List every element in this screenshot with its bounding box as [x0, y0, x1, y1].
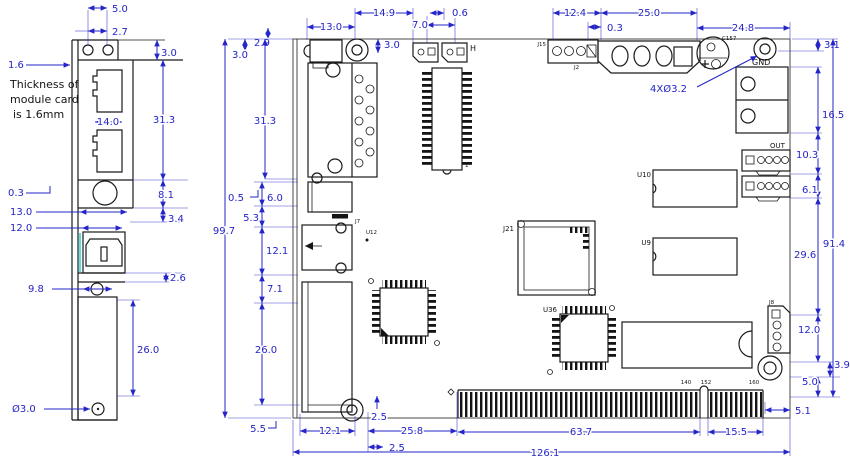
- dim-db-section: 31.3: [254, 116, 276, 127]
- label-j8: J8: [768, 300, 775, 306]
- dim-jack-width: 13.0: [10, 207, 32, 218]
- dim-hole-top-offset: 3.1: [824, 40, 840, 51]
- dim-hole-offset: 2.7: [112, 27, 128, 38]
- dim-seg-6-1: 6.1: [802, 185, 818, 196]
- dim-rj45-width: 14.0: [97, 117, 119, 128]
- dim-seg-10-3: 10.3: [796, 150, 818, 161]
- usb-b-opening: [83, 232, 125, 273]
- dim-finger-seg-small: 15.5: [725, 427, 747, 438]
- mounting-hole-bottom-right: [758, 356, 782, 380]
- label-u9: U9: [641, 239, 651, 247]
- dim-corner-offset: 5.5: [250, 424, 266, 435]
- rj45-cutout-2: [93, 130, 122, 172]
- rj45-cutout-1: [93, 70, 122, 112]
- label-j7: J7: [354, 219, 361, 225]
- tab-hole-left: [83, 45, 93, 55]
- j15-header: [548, 40, 598, 63]
- mounting-hole-top-left: [346, 39, 368, 61]
- dim-gap-below-jack: 3.4: [168, 214, 184, 225]
- dim-seg-6-0: 6.0: [267, 193, 283, 204]
- dim-jack-to-hole: 14.9: [373, 8, 395, 19]
- j21-socket: [518, 221, 596, 296]
- dim-jack-section: 8.1: [158, 190, 174, 201]
- dim-tab-height: 3.0: [161, 48, 177, 59]
- lower-connector-cutout: [78, 297, 117, 420]
- polarity-mark: [448, 389, 454, 395]
- thickness-note-line2: module card: [10, 93, 79, 106]
- dim-lower-connector: 26.0: [137, 345, 159, 356]
- jack-opening: [93, 181, 117, 205]
- label-gnd: GND: [752, 58, 770, 67]
- lower-left-connector: [302, 282, 352, 412]
- dim-strip: 2.6: [170, 273, 186, 284]
- flash-chip: [622, 322, 752, 368]
- dim-hole-offset-top: 3.0: [384, 40, 400, 51]
- dim-jack-width: 13.0: [320, 22, 342, 33]
- dim-hole-inset: 9.8: [28, 284, 44, 295]
- dim-usb-height: 12.1: [266, 246, 288, 257]
- dim-seg-3-9: 3.9: [834, 360, 850, 371]
- dim-to-fingers: 25.8: [401, 426, 423, 437]
- label-finger-b: 152: [701, 380, 712, 386]
- u10-chip: [653, 170, 737, 207]
- label-u12: U12: [366, 230, 377, 236]
- label-finger-a: 140: [681, 380, 692, 386]
- label-pin1: 1: [465, 163, 469, 169]
- gnd-terminal-block: [736, 67, 788, 133]
- dim-plate-thickness: 1.6: [8, 60, 24, 71]
- edge-connector: [448, 386, 763, 418]
- j2-power-connector: [598, 41, 700, 73]
- qfp-chip-left: [369, 279, 440, 346]
- label-finger-c: 160: [749, 380, 760, 386]
- mounting-hole-top-right: [754, 38, 776, 60]
- dim-hole-diameter: Ø3.0: [12, 403, 36, 415]
- dim-j2-to-edge: 24.8: [732, 23, 754, 34]
- dim-connector-height: 26.0: [255, 345, 277, 356]
- thickness-note-line1: Thickness of: [9, 78, 80, 91]
- dim-header-pitch: 7.0: [412, 20, 428, 31]
- dim-hole-offset-v: 2.5: [371, 412, 387, 423]
- label-j2: J2: [573, 65, 579, 71]
- dim-jack-overhang: 2.9: [254, 38, 270, 49]
- label-out: OUT: [770, 142, 786, 150]
- side-view: 5.0 2.7 3.0 1.6 Thickness of module card…: [8, 4, 188, 420]
- dim-header-gap: 0.6: [452, 8, 468, 19]
- label-j21: J21: [502, 225, 514, 233]
- dim-hole-pitch: 5.0: [112, 4, 128, 15]
- board-dimensions-right: 3.1 16.5 10.3 6.1 29.6 12.0 3.9 5.0: [765, 39, 850, 417]
- u9-chip: [653, 238, 737, 275]
- board-view: GND OUT H C157 J15 J2 J21 J7 J8 U9 U10 U…: [213, 8, 850, 459]
- dim-j8-height: 12.0: [798, 325, 820, 336]
- small-connector-block: [308, 182, 352, 219]
- dim-finger-seg-main: 63.7: [570, 427, 592, 438]
- pcb-mechanical-drawing: 5.0 2.7 3.0 1.6 Thickness of module card…: [0, 0, 850, 464]
- dim-j2-width: 25.0: [638, 8, 660, 19]
- ssop-chip: [422, 68, 472, 174]
- mechanical-drawing-page: 5.0 2.7 3.0 1.6 Thickness of module card…: [0, 0, 850, 464]
- board-dimensions-left: 99.7 31.3 0.5 6.0 5.3 12.1 7.1 26.0 5.5: [213, 39, 300, 435]
- dim-usb-width: 12.0: [10, 223, 32, 234]
- u36-chip: [548, 306, 617, 375]
- dim-j15-width: 12.4: [564, 8, 586, 19]
- label-j15: J15: [536, 42, 546, 48]
- out-header-2: [742, 176, 790, 201]
- dim-j15-to-j2: 0.3: [607, 23, 623, 34]
- label-c157: C157: [722, 36, 737, 42]
- dim-seg-5-0: 5.0: [802, 377, 818, 388]
- dim-seg-5-3: 5.3: [243, 213, 259, 224]
- dim-seg-7-1: 7.1: [267, 284, 283, 295]
- dim-edge-inset: 5.1: [795, 406, 811, 417]
- j8-header: [768, 306, 790, 353]
- tab-hole-right: [103, 45, 113, 55]
- label-u36: U36: [543, 306, 558, 314]
- dim-rj45-section: 31.3: [153, 115, 175, 126]
- dim-overall-height-left: 99.7: [213, 226, 235, 237]
- dim-lip: 0.3: [8, 188, 24, 199]
- out-header-1: [742, 150, 790, 175]
- dim-seg-29-6: 29.6: [794, 250, 816, 261]
- dim-edge-lip: 0.5: [228, 193, 244, 204]
- dim-hole-callout: 4XØ3.2: [650, 83, 687, 95]
- board-outline: [293, 39, 790, 418]
- dim-block-width: 12.1: [319, 426, 341, 437]
- thickness-note-line3: is 1.6mm: [13, 108, 64, 121]
- side-view-dimensions: 5.0 2.7 3.0 1.6 Thickness of module card…: [8, 4, 188, 415]
- label-u10: U10: [637, 171, 651, 179]
- dim-overall-height-right: 91.4: [823, 239, 845, 250]
- h-headers: [413, 43, 467, 62]
- board-dimensions-top: 13.0 14.9 2.9 3.0 3.0 7.0 0.6 12.4 0.3: [232, 8, 790, 95]
- db-connector: [308, 63, 377, 183]
- usb-connector-j7: [302, 223, 369, 273]
- dim-overall-width: 126.1: [531, 448, 560, 459]
- dim-edge-offset-left: 3.0: [232, 50, 248, 61]
- label-h: H: [470, 44, 476, 53]
